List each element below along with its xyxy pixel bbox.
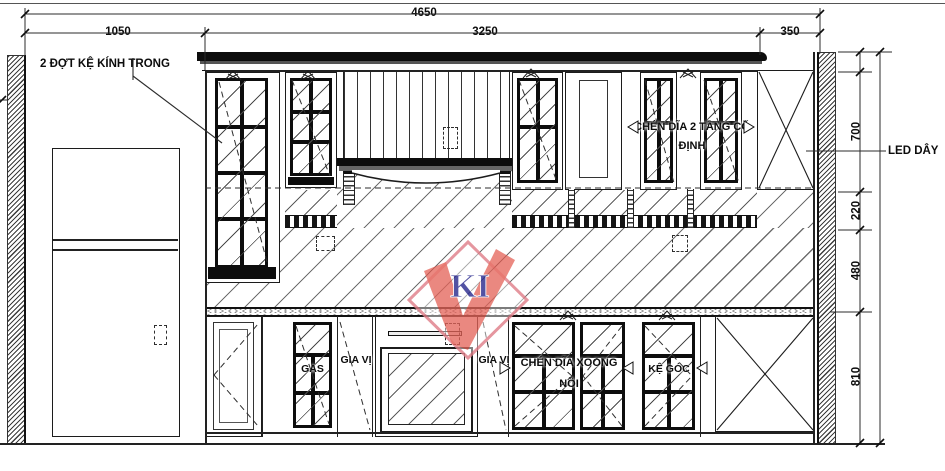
fridge-divider-line: [53, 239, 178, 241]
dim-upper-height: 700: [851, 104, 864, 160]
outlet-backsplash-right: [672, 235, 688, 252]
dim-total-width: 4650: [396, 7, 452, 20]
fridge-divider-line2: [53, 249, 178, 251]
upper-corner-filler: [757, 70, 815, 190]
mantle-shelf: [337, 158, 515, 166]
shelf-post-3: [687, 189, 694, 228]
spice-slot-edge-2: [372, 316, 373, 437]
open-shelf-hatch-right: [512, 190, 757, 216]
mantle-shelf-edge: [339, 166, 513, 171]
upper-plain-cabinet: [565, 72, 622, 190]
open-shelf-hatch-left: [285, 190, 337, 216]
oven-cabinet: [375, 316, 478, 437]
base-stile-line-2: [700, 316, 701, 437]
fridge-outlet: [154, 325, 167, 345]
dim-shelf-height: 220: [851, 183, 864, 239]
dim-seg-middle: 3250: [457, 26, 513, 39]
shelf-post-1: [568, 189, 575, 228]
shelf-post-2: [627, 189, 634, 228]
upper-glass-cabinet-tall: [205, 72, 280, 283]
dim-base-height: 810: [851, 349, 864, 405]
note-glass-shelves: 2 ĐỢT KỆ KÍNH TRONG: [40, 57, 190, 71]
spice2-slot-edge: [508, 316, 509, 437]
cabinet-bottom-band: [208, 267, 276, 279]
mantle-corbel-right: [499, 171, 511, 205]
hood-beadboard-panel: [343, 72, 510, 158]
base-stile-line: [262, 316, 263, 437]
base-blind-cabinet: [205, 316, 262, 437]
floor-line: [0, 443, 885, 445]
left-wall-hatch: [7, 55, 26, 444]
outlet-backsplash-left: [316, 236, 335, 251]
right-wall-hatch: [817, 52, 836, 444]
upper-glass-cabinet-3: [512, 72, 563, 190]
label-corner-shelf: KỆ GÓC: [638, 363, 700, 376]
top-border-line: [0, 3, 945, 4]
spice-slot-edge-1: [337, 316, 338, 437]
hood-backsplash-hatch: [337, 166, 512, 228]
oven-outlet: [445, 323, 460, 345]
hood-outlet: [443, 127, 458, 149]
cornice-crown: [197, 52, 767, 61]
label-spice-2: GIA VỊ: [477, 354, 511, 367]
toe-kick-line: [205, 432, 815, 434]
elevation-drawing: 4650 1050 3250 350 700 220 480 810 2 ĐỢT…: [0, 0, 945, 471]
open-shelf-weave-left: [285, 215, 337, 228]
backsplash-hatch: [205, 228, 815, 307]
cabinet-bottom-band: [288, 177, 334, 185]
open-shelf-weave-right: [512, 215, 757, 228]
dim-backsplash-height: 480: [851, 243, 864, 299]
label-spice-1: GIA VỊ: [339, 354, 373, 367]
label-dish-upper: CHÉN DĨA 2 TẦNG CỐ ĐỊNH: [624, 118, 760, 155]
mantle-corbel-left: [343, 171, 355, 205]
run-right-edge: [813, 52, 815, 443]
label-pots: CHÉN DĨA XOONG NỒI: [513, 353, 625, 395]
base-corner-filler: [715, 316, 815, 432]
corner-backsplash-hatch: [757, 190, 815, 228]
dim-seg-right: 350: [767, 26, 813, 39]
upper-glass-cabinet-2: [285, 72, 337, 188]
dim-seg-left: 1050: [90, 26, 146, 39]
note-led: LED DÂY: [888, 144, 944, 158]
oven-door: [380, 347, 473, 433]
label-gas: GAS: [292, 363, 333, 376]
run-left-edge: [205, 70, 207, 443]
refrigerator: [52, 148, 180, 437]
